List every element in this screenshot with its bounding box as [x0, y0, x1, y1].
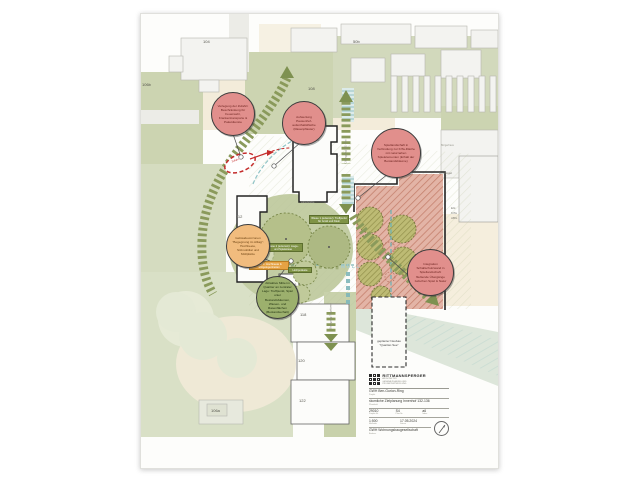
annotation-bubble-vorzonen: Gebäudevorzonen "Begegnung im Alltag": H…	[226, 224, 270, 268]
index-label: Index	[422, 413, 449, 415]
building-number-106a: 106a	[211, 409, 220, 413]
label-planned-building: geplanter Neubau "Quartier-See"	[371, 340, 407, 348]
annotation-text: Spiellandschaft in Verbindung zur KiTa-F…	[377, 143, 415, 163]
field-plan-title: räumliche Zielplanung Innenhof 132-136 P…	[369, 399, 449, 409]
building-number-118: 118	[300, 313, 306, 317]
label-rasenkante: Rasenkante	[301, 202, 314, 205]
building-number-108: 108	[308, 87, 315, 91]
building-number-106b: 106b	[142, 83, 151, 87]
building-number-122: 122	[299, 399, 306, 403]
planned-building-outline	[372, 297, 406, 367]
tag-holzpodeste: Holzpodeste	[288, 267, 312, 273]
label-uebergang-tegelweg: Übergang Tegelweg	[330, 293, 333, 341]
annotation-bubble-spiellandschaft: Spiellandschaft in Verbindung zur KiTa-F…	[371, 128, 421, 178]
label-am-buegel: Am Bügel	[439, 172, 452, 175]
building-number-104: 104	[203, 40, 210, 44]
label-buergerhaus: Bürgerhaus	[441, 145, 454, 148]
label-muell: MÜLL	[341, 264, 361, 270]
label-kita-abg: ABG	[451, 217, 457, 220]
annotation-bubble-mitte: Attraktive Mitte im Quartier an zentrale…	[256, 276, 299, 319]
field-numbers-row: 29010 Projekt-Nr. S4 Plan-Nr. a6 Index	[369, 409, 449, 419]
title-block: RITTMANNSPERGER ARCHITEKTUR GENERALPLANU…	[369, 374, 449, 437]
field-client: GWH Wohnungsbaugesellschaft Bauherr	[369, 428, 431, 437]
field-project: GWH Ben-Gurion-Ring Projekt	[369, 389, 449, 399]
building-number-112: 112	[236, 215, 242, 219]
firm-header: RITTMANNSPERGER ARCHITEKTUR GENERALPLANU…	[369, 374, 449, 389]
annotation-bubble-schallschutz: Integration Schallschutzwand in Spiellan…	[407, 249, 454, 296]
annotation-text: Gebäudevorzonen "Begegnung im Alltag": H…	[232, 236, 264, 256]
annotation-bubble-zufahrt: Verlegung der Zufahrt: Beschränkung für …	[211, 92, 255, 136]
annotation-text: Verlegung der Zufahrt: Beschränkung für …	[217, 104, 249, 124]
date-label: Datum	[400, 423, 431, 425]
project-no-label: Projekt-Nr.	[369, 413, 396, 415]
project-label: Projekt	[369, 394, 449, 396]
field-bottom-section: 1:500 Maßstab 17.05.2024 Datum GWH Wohnu…	[369, 418, 449, 437]
annotation-text: Integration Schallschutzwand in Spiellan…	[413, 262, 448, 282]
north-arrow-icon	[434, 421, 449, 436]
page-canvas: 104 106b 50b 108 110 112 114 116 118 120…	[0, 0, 640, 480]
tag-wiese-1: Wiese 1 (extensiv): Treffpunkt für Groß …	[309, 215, 349, 224]
plan-sheet: 104 106b 50b 108 110 112 114 116 118 120…	[140, 13, 499, 469]
client-label: Bauherr	[369, 433, 431, 435]
annotation-text: Aufwertung Pausenhof- aufenthaltsfläche …	[288, 115, 320, 131]
building-number-50b: 50b	[353, 40, 360, 44]
plan-no-label: Plan-Nr.	[396, 413, 423, 415]
plan-title-label: Planinhalt	[369, 404, 449, 406]
annotation-bubble-pausenhof: Aufwertung Pausenhof- aufenthaltsfläche …	[282, 101, 326, 145]
label-uebergang-qe-ost: Übergang QE Ost	[345, 130, 348, 174]
firm-logo	[369, 374, 380, 385]
field-scale-date-row: 1:500 Maßstab 17.05.2024 Datum	[369, 418, 431, 428]
label-kita-kita: KiTa	[451, 212, 457, 215]
annotation-text: Attraktive Mitte im Quartier an zentrale…	[262, 281, 293, 313]
scale-label: Maßstab	[369, 423, 400, 425]
firm-sub3: PROJEKTENTWICKLUNG	[382, 383, 425, 386]
building-number-120: 120	[298, 359, 305, 363]
label-kita-eg: EG:	[451, 207, 456, 210]
